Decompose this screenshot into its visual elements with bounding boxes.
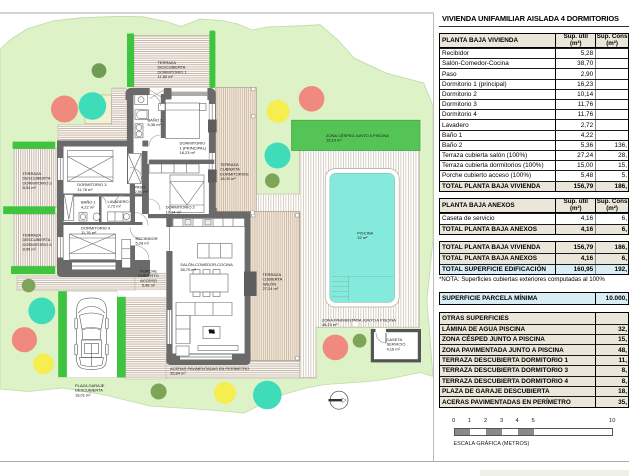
svg-text:BAÑO 25,36 m²: BAÑO 25,36 m²	[148, 118, 163, 128]
svg-text:BAÑO 14,22 m²: BAÑO 14,22 m²	[81, 200, 96, 210]
svg-text:PLAZA GARAJEDESCUBIERTA18,01 m: PLAZA GARAJEDESCUBIERTA18,01 m²	[75, 383, 105, 397]
